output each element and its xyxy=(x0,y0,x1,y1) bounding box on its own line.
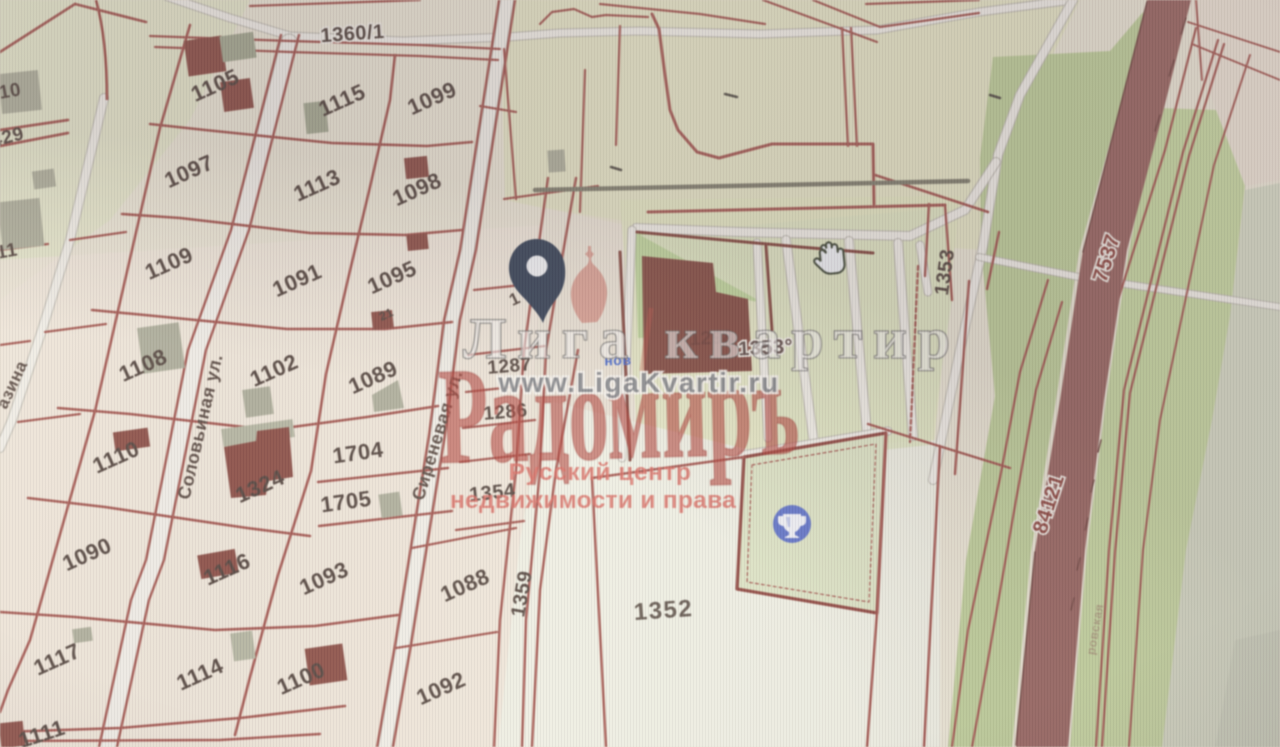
svg-text:1360/1: 1360/1 xyxy=(320,21,386,47)
svg-text:Русский центр: Русский центр xyxy=(509,459,692,486)
svg-text:10: 10 xyxy=(0,79,23,104)
svg-text:1352: 1352 xyxy=(633,595,694,626)
svg-text:www.LigaKvartir.ru: www.LigaKvartir.ru xyxy=(497,367,779,398)
svg-text:недвижимости и права: недвижимости и права xyxy=(450,487,736,514)
